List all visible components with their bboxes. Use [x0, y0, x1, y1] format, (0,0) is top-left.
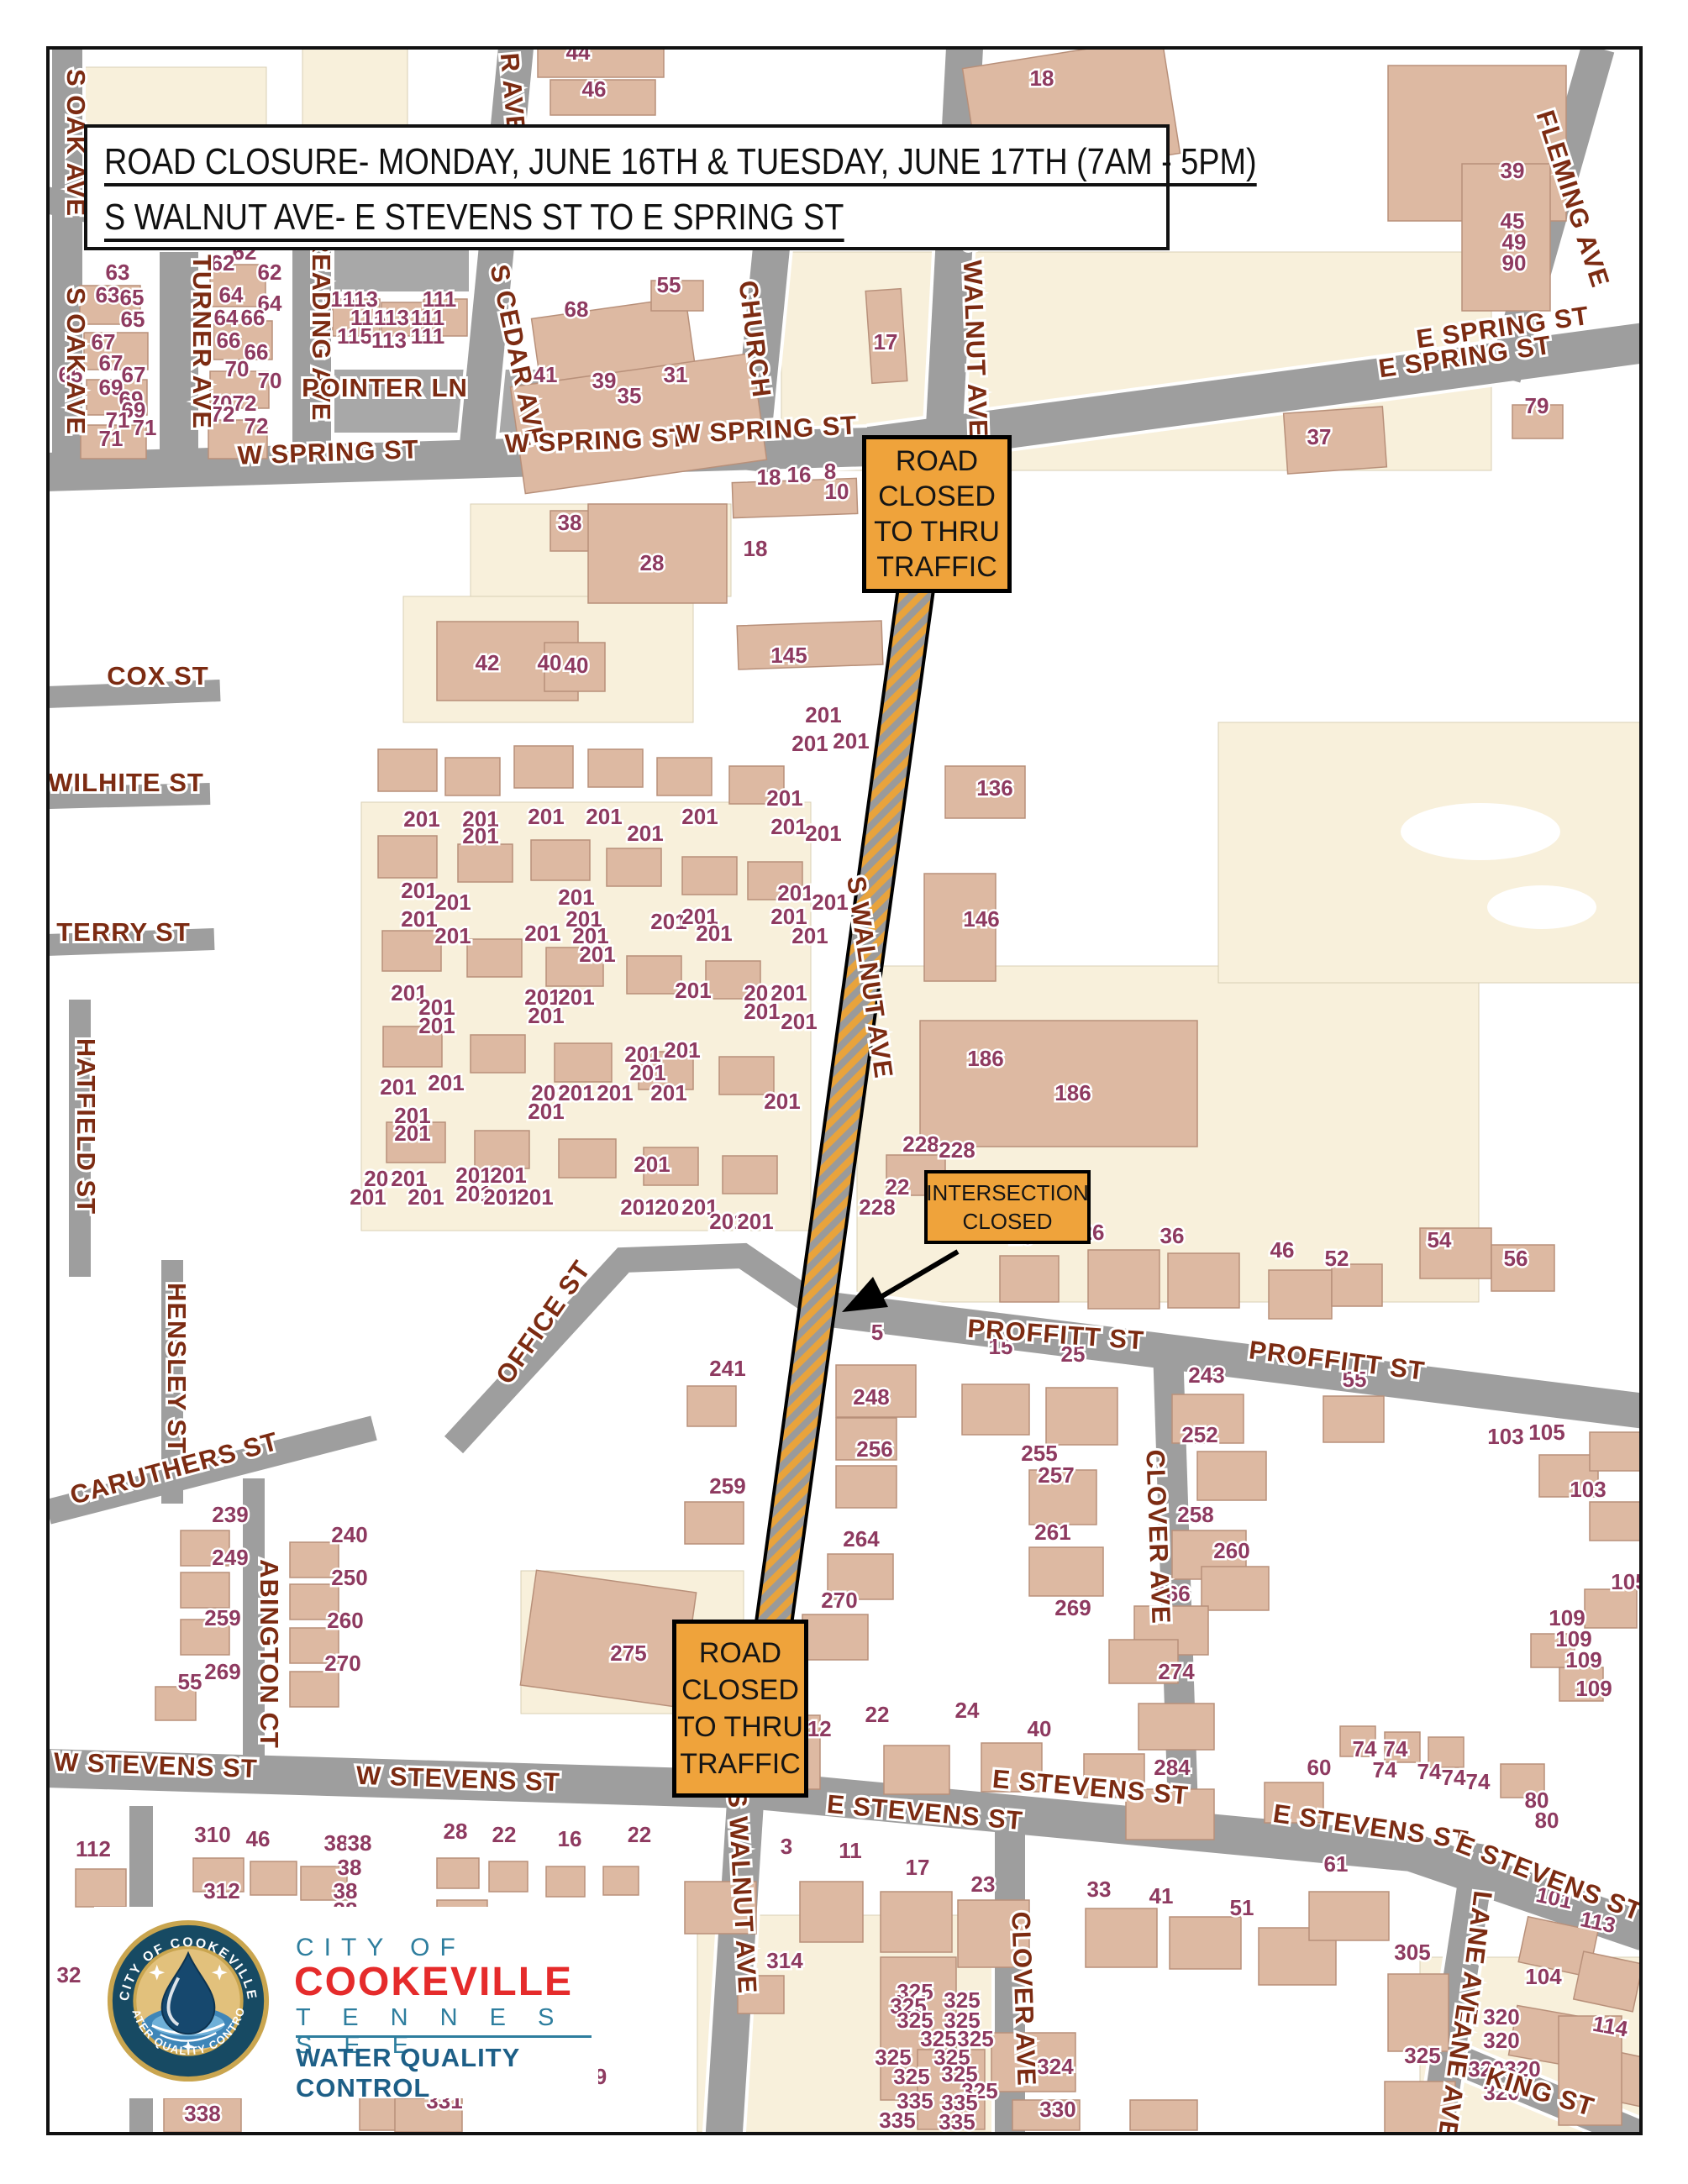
parcel-number: 250: [331, 1565, 367, 1590]
street-label: POINTER LN: [302, 373, 468, 402]
parcel-number: 248: [853, 1384, 889, 1410]
parcel-number: 2: [628, 1822, 639, 1847]
parcel-number: 201: [597, 1080, 633, 1105]
parcel-number: 46: [582, 76, 607, 102]
parcel-number: 201: [408, 1184, 444, 1210]
street-label: CLOVER AVE: [1006, 1911, 1041, 2087]
parcel-number: 74: [1442, 1765, 1466, 1790]
parcel-number: 201: [620, 1194, 656, 1220]
building: [181, 1572, 229, 1608]
street-label: HENSLEY ST: [162, 1283, 192, 1454]
logo-city-of: CITY OF: [296, 1934, 465, 1962]
building: [723, 1156, 777, 1194]
city-logo-panel: CITY OF COOKEVILLE WATER QUALITY CONTROL…: [94, 1907, 598, 2098]
building: [1590, 1502, 1639, 1541]
parcel-number: 17: [906, 1855, 930, 1880]
building: [1000, 1256, 1059, 1302]
building: [657, 758, 712, 795]
parcel-number: 201: [696, 921, 732, 946]
building: [1086, 1908, 1157, 1967]
parcel-number: 115: [337, 323, 372, 349]
parcel-number: 39: [592, 368, 617, 393]
parcel-number: 40: [1028, 1716, 1052, 1741]
parcel-number: 46: [1270, 1237, 1295, 1263]
parcel-number: 201: [428, 1070, 464, 1095]
parcel-number: 32: [57, 1962, 82, 1987]
parcel-number: 36: [1160, 1223, 1185, 1248]
building: [1309, 1892, 1389, 1940]
parcel-number: 201: [777, 880, 813, 906]
building: [881, 1892, 952, 1952]
building: [603, 1866, 639, 1895]
parcel-number: 201: [812, 890, 848, 915]
parcel-number: 42: [476, 650, 500, 675]
parcel-number: 269: [1054, 1595, 1091, 1620]
parcel-number: 79: [1525, 393, 1549, 418]
building: [685, 1502, 744, 1544]
parcel-number: 56: [1504, 1246, 1528, 1271]
parcel-number: 109: [1575, 1676, 1612, 1701]
building: [520, 1570, 696, 1707]
road: [50, 690, 220, 697]
building: [1388, 1974, 1449, 2051]
parcel-number: 239: [212, 1502, 248, 1527]
parcel-number: 33: [1087, 1877, 1112, 1902]
building: [1170, 1917, 1241, 1969]
parcel-number: 145: [770, 643, 807, 668]
building: [1323, 1396, 1384, 1442]
parcel-number: 72: [233, 391, 257, 416]
building: [1585, 1589, 1637, 1628]
parcel-number: 11: [839, 1838, 862, 1863]
building: [382, 931, 441, 971]
parcel-number: 65: [121, 307, 145, 332]
parcel-number: 201: [805, 821, 841, 846]
building: [378, 836, 437, 878]
parcel-number: 16: [558, 1826, 582, 1851]
building: [290, 1672, 339, 1707]
parcel-number: 314: [766, 1948, 803, 1973]
building: [538, 50, 664, 77]
parcel-number: 201: [401, 878, 437, 903]
parcel-number: 72: [245, 413, 269, 438]
parcel-number: 61: [1324, 1851, 1349, 1877]
parcel-number: 201: [781, 1009, 817, 1034]
parcel-number: 201: [524, 921, 560, 946]
parcel-number: 201: [744, 999, 780, 1024]
building: [467, 939, 522, 977]
street-label: ABINGTON CT: [255, 1559, 284, 1749]
parcel-number: 261: [1034, 1520, 1070, 1545]
building: [250, 1861, 297, 1895]
parcel-number: 201: [579, 942, 615, 967]
parcel-number: 335: [939, 2109, 975, 2132]
parcel-number: 335: [879, 2108, 915, 2132]
building: [559, 1139, 616, 1178]
building: [802, 1614, 868, 1660]
parcel-number: 186: [1054, 1080, 1091, 1105]
parcel-number: 146: [963, 906, 999, 932]
building: [588, 749, 643, 787]
parcel-number: 310: [194, 1822, 230, 1847]
parcel-number: 23: [971, 1872, 996, 1897]
street-label: S OAK AVE: [61, 287, 91, 435]
parcel-number: 74: [1417, 1759, 1442, 1784]
city-seal-icon: CITY OF COOKEVILLE WATER QUALITY CONTROL: [106, 1919, 271, 2083]
parcel-number: 201: [627, 821, 663, 846]
parcel-number: 252: [1181, 1422, 1217, 1447]
building: [1046, 1388, 1117, 1445]
parcel-number: 201: [517, 1184, 553, 1210]
parcel-number: 38: [558, 510, 582, 535]
parcel-number: 71: [133, 415, 157, 440]
parcel-number: 228: [902, 1131, 939, 1157]
building: [378, 749, 437, 791]
parcel-number: 35: [618, 383, 642, 408]
parcel-number: 201: [764, 1089, 800, 1114]
street-label: WILHITE ST: [50, 768, 204, 797]
parcel-map: 4446183945499063636565656767676969697171…: [50, 50, 1639, 2132]
parcel-number: 274: [1158, 1659, 1195, 1684]
parcel-number: 71: [99, 426, 124, 451]
building: [1269, 1270, 1332, 1319]
building: [445, 758, 500, 795]
parcel-number: 201: [394, 1121, 430, 1146]
parcel-number: 201: [805, 702, 841, 727]
pond: [1487, 885, 1596, 929]
parcel-number: 18: [1030, 66, 1054, 91]
parcel-number: 201: [634, 1152, 670, 1177]
parcel-number: 201: [528, 1099, 564, 1124]
parcel-number: 240: [331, 1522, 367, 1547]
parcel-number: 269: [204, 1659, 240, 1684]
parcel-number: 74: [1466, 1769, 1491, 1794]
parcel-number: 41: [1149, 1883, 1174, 1908]
parcel-number: 284: [1154, 1755, 1191, 1780]
parcel-number: 40: [538, 650, 562, 675]
parcel-number: 66: [241, 305, 266, 330]
parcel-number: 325: [893, 2064, 929, 2089]
building: [437, 1858, 479, 1888]
parcel-number: 324: [1037, 2054, 1074, 2079]
parcel-number: 16: [787, 462, 812, 487]
parcel-number: 68: [565, 297, 589, 322]
parcel-number: 201: [833, 728, 869, 753]
map-area: 4446183945499063636565656767676969697171…: [50, 50, 1639, 2132]
intersection-closed-sign: INTERSECTION CLOSED: [924, 1170, 1091, 1244]
parcel-number: 338: [184, 2101, 220, 2126]
parcel-number: 201: [664, 1037, 700, 1063]
parcel-number: 113: [371, 328, 407, 353]
parcel-number: 249: [212, 1545, 248, 1570]
parcel-number: 103: [1570, 1477, 1606, 1502]
parcel-number: 201: [350, 1184, 386, 1210]
parcel-number: 228: [939, 1137, 975, 1163]
parcel-number: 201: [681, 804, 718, 829]
parcel-number: 258: [1177, 1502, 1213, 1527]
parcel-number: 201: [418, 1013, 455, 1038]
parcel-number: 109: [1565, 1647, 1601, 1672]
parcel-number: 113: [374, 305, 409, 330]
parcel-number: 28: [444, 1819, 468, 1844]
parcel-number: 201: [403, 806, 439, 832]
street-label: CLOVER AVE: [1140, 1449, 1175, 1625]
parcel-number: 67: [122, 362, 146, 387]
building: [607, 848, 661, 886]
parcel-number: 201: [401, 906, 437, 932]
building: [1088, 1250, 1160, 1309]
parcel-number: 201: [483, 1184, 519, 1210]
building: [1029, 1547, 1103, 1596]
building: [1138, 1704, 1214, 1750]
pond: [1401, 803, 1560, 860]
parcel-number: 256: [856, 1436, 892, 1462]
parcel-number: 24: [955, 1698, 980, 1723]
parcel-number: 18: [757, 465, 781, 490]
street-label: TURNER AVE: [187, 255, 217, 429]
parcel-number: 270: [821, 1588, 857, 1613]
building: [800, 1882, 863, 1942]
parcel-number: 2: [639, 1822, 651, 1847]
building: [1168, 1253, 1239, 1308]
road-closed-sign-south: ROAD CLOSED TO THRU TRAFFIC: [672, 1620, 808, 1798]
parcel-number: 31: [664, 362, 688, 387]
parcel-number: 201: [434, 890, 471, 915]
building: [1130, 2100, 1197, 2130]
parcel-number: 18: [744, 536, 768, 561]
parcel-number: 201: [586, 804, 622, 829]
parcel-number: 52: [1325, 1246, 1349, 1271]
parcel-number: 241: [709, 1356, 745, 1381]
parcel-number: 260: [1213, 1538, 1249, 1563]
parcel-number: 260: [327, 1608, 363, 1633]
building: [1284, 407, 1387, 474]
parcel-number: 22: [492, 1822, 517, 1847]
building: [76, 1869, 126, 1907]
parcel-number: 201: [462, 823, 498, 848]
building: [962, 1384, 1029, 1435]
parcel-number: 40: [565, 653, 589, 678]
parcel-number: 259: [709, 1473, 745, 1499]
parcel-number: 67: [99, 350, 124, 375]
parcel-number: 46: [246, 1826, 271, 1851]
parcel-number: 243: [1188, 1362, 1224, 1388]
parcel-number: 39: [1501, 158, 1525, 183]
parcel-number: 17: [874, 329, 898, 354]
parcel-number: 201: [766, 785, 802, 811]
parcel-number: 320: [1483, 2004, 1519, 2029]
parcel-number: 186: [967, 1046, 1003, 1071]
street-label: HATFIELD ST: [71, 1038, 101, 1215]
parcel-number: 66: [217, 328, 241, 353]
parcel-number: 330: [1039, 2097, 1075, 2122]
parcel-number: 105: [1611, 1569, 1639, 1594]
parcel-number: 228: [859, 1194, 895, 1220]
building: [531, 840, 590, 880]
title-box: ROAD CLOSURE- MONDAY, JUNE 16TH & TUESDA…: [84, 124, 1170, 250]
road-closure-map-page: { "title": { "line1": "ROAD CLOSURE- MON…: [0, 0, 1688, 2184]
parcel-number: 28: [640, 550, 665, 575]
parcel-number: 38: [348, 1830, 372, 1856]
parcel-number: 112: [76, 1836, 111, 1861]
parcel-number: 201: [675, 978, 711, 1003]
parcel-number: 320: [1483, 2028, 1519, 2053]
parcel-number: 270: [324, 1651, 360, 1676]
parcel-number: 136: [976, 775, 1012, 801]
parcel-number: 104: [1525, 1964, 1562, 1989]
logo-city-name: COOKEVILLE: [294, 1959, 573, 2005]
parcel-number: 201: [528, 1003, 564, 1028]
parcel-number: 264: [843, 1526, 880, 1551]
parcel-number: 305: [1394, 1940, 1430, 1965]
street-label: COX ST: [107, 661, 208, 690]
parcel-number: 10: [825, 479, 849, 504]
building: [1202, 1567, 1269, 1610]
parcel-number: 325: [1404, 2043, 1440, 2068]
parcel-number: 44: [566, 50, 591, 65]
parcel-number: 257: [1038, 1462, 1074, 1488]
parcel-number: 201: [737, 1209, 773, 1234]
building: [737, 621, 883, 669]
parcel-number: 64: [219, 282, 244, 307]
parcel-number: 201: [770, 814, 807, 839]
building: [471, 1035, 525, 1073]
building: [836, 1466, 897, 1508]
parcel-number: 63: [96, 282, 120, 307]
parcel-number: 60: [1307, 1755, 1332, 1780]
parcel-number: 201: [528, 804, 564, 829]
parcel-number: 5: [871, 1320, 883, 1345]
title-line-1: ROAD CLOSURE- MONDAY, JUNE 16TH & TUESDA…: [104, 134, 1018, 190]
parcel-number: 105: [1528, 1420, 1564, 1445]
parcel-number: 70: [258, 368, 282, 393]
building: [546, 1866, 585, 1897]
building: [1197, 1452, 1266, 1500]
building: [687, 1386, 736, 1426]
parcel-number: 201: [434, 923, 471, 948]
parcel-number: 275: [610, 1641, 646, 1666]
parcel-number: 62: [258, 260, 282, 285]
parcel-number: 312: [203, 1878, 239, 1903]
parcel-number: 74: [1373, 1757, 1397, 1782]
street-label: TERRY ST: [56, 917, 191, 947]
parcel-number: 3: [781, 1834, 792, 1859]
building: [555, 1043, 612, 1082]
building: [489, 1861, 528, 1892]
parcel-number: 201: [650, 1080, 686, 1105]
building: [627, 956, 681, 994]
logo-department: WATER QUALITY CONTROL: [296, 2043, 598, 2103]
parcel-number: 37: [1307, 424, 1332, 449]
building: [514, 746, 573, 788]
parcel-number: 259: [204, 1605, 240, 1630]
parcel-number: 55: [178, 1669, 202, 1694]
parcel-number: 51: [1230, 1895, 1254, 1920]
parcel-number: 38: [338, 1855, 362, 1880]
logo-divider: [296, 2035, 592, 2038]
parcel-number: 201: [791, 731, 828, 756]
parcel-number: 63: [106, 260, 130, 285]
building: [884, 1746, 949, 1794]
parcel-number: 201: [380, 1074, 416, 1100]
parcel-number: 38: [324, 1830, 349, 1856]
building: [1590, 1432, 1639, 1471]
road-closed-sign-north: ROAD CLOSED TO THRU TRAFFIC: [862, 435, 1012, 593]
parcel-number: 103: [1487, 1424, 1523, 1449]
parcel-number: 80: [1535, 1808, 1559, 1833]
parcel-number: 55: [657, 272, 681, 297]
parcel-number: 111: [411, 323, 445, 349]
parcel-number: 70: [225, 356, 250, 381]
building: [458, 844, 513, 882]
parcel-number: 90: [1502, 250, 1527, 276]
parcel-number: 54: [1428, 1227, 1452, 1252]
parcel-number: 201: [791, 923, 828, 948]
building: [682, 857, 737, 895]
parking-lot: [334, 248, 469, 291]
parcel-number: 22: [865, 1702, 890, 1727]
title-line-2: S WALNUT AVE- E STEVENS ST TO E SPRING S…: [104, 190, 1018, 245]
